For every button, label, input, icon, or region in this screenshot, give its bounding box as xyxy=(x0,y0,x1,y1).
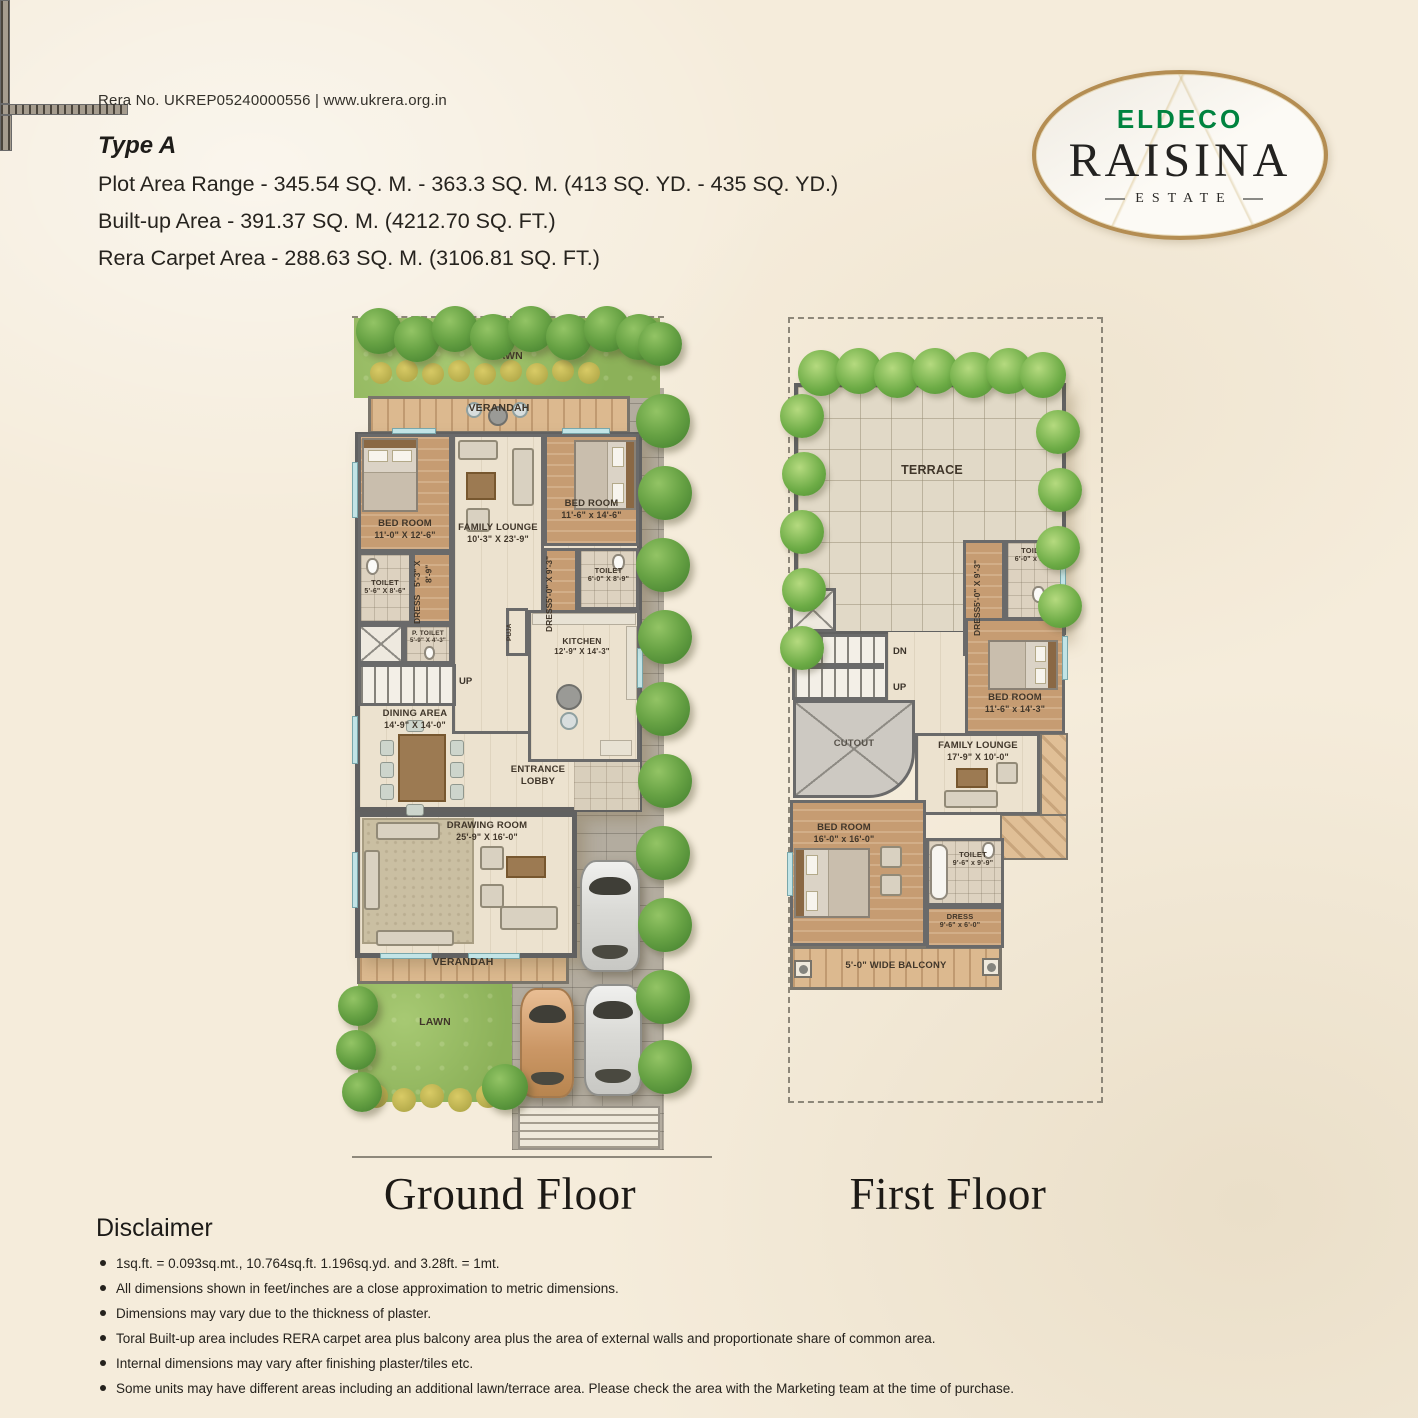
gf-armchair-icon xyxy=(480,884,504,908)
chair-icon xyxy=(380,762,394,778)
shrub-icon xyxy=(448,360,470,382)
gf-sofa-icon xyxy=(364,850,380,910)
gf-toilet-2-label: TOILET6'-0" X 8'-9" xyxy=(578,566,639,585)
disclaimer-item: 1sq.ft. = 0.093sq.mt., 10.764sq.ft. 1.19… xyxy=(116,1256,1386,1271)
tree-icon xyxy=(482,1064,528,1110)
tree-icon xyxy=(336,1030,376,1070)
ff-lounge-sofa-icon xyxy=(944,790,998,808)
tree-icon xyxy=(636,826,690,880)
bullet-icon xyxy=(100,1310,106,1316)
ff-terrace-label: TERRACE xyxy=(852,462,1012,478)
ff-side-balcony-corner xyxy=(1000,814,1068,860)
gf-dress-2-label: DRESS5'-0" X 9'-3" xyxy=(544,548,578,640)
ground-floor-title: Ground Floor xyxy=(352,1168,668,1220)
shrub-icon xyxy=(578,362,600,384)
plant-icon xyxy=(1038,468,1082,512)
ff-stairs-up-label: UP xyxy=(893,682,906,693)
window-icon xyxy=(1062,636,1068,680)
ff-dress-top-label: DRESS5'-0" X 9'-3" xyxy=(972,540,1005,656)
bullet-icon xyxy=(100,1260,106,1266)
gf-stairs xyxy=(358,664,456,706)
gf-toilet-1-wc-icon xyxy=(366,558,379,575)
shrub-icon xyxy=(422,363,444,385)
disclaimer-item: Dimensions may vary due to the thickness… xyxy=(116,1306,1386,1321)
gf-stove-icon xyxy=(600,740,632,756)
gf-lounge-table-icon xyxy=(466,472,496,500)
plant-icon xyxy=(782,568,826,612)
first-floor-title: First Floor xyxy=(790,1168,1106,1220)
tree-icon xyxy=(638,754,692,808)
plot-area-line: Plot Area Range - 345.54 SQ. M. - 363.3 … xyxy=(98,172,838,197)
ff-bedroom-2-label: BED ROOM16'-0" x 16'-0" xyxy=(794,822,894,845)
window-icon xyxy=(562,428,610,434)
ff-cutout-label: CUTOUT xyxy=(793,738,915,750)
gf-powder-toilet-wc-icon xyxy=(424,646,435,660)
type-label: Type A xyxy=(98,132,176,160)
ff-toilet-bottom-label: TOILET9'-6" x 9'-9" xyxy=(944,850,1002,869)
plant-icon xyxy=(780,510,824,554)
shrub-icon xyxy=(526,363,548,385)
ff-lounge-table-icon xyxy=(956,768,988,788)
brochure-page: Rera No. UKREP05240000556 | www.ukrera.o… xyxy=(0,0,1418,1418)
tree-icon xyxy=(638,322,682,366)
gf-dining-table-icon xyxy=(398,734,446,802)
chair-icon xyxy=(380,740,394,756)
plant-icon xyxy=(780,626,824,670)
chair-icon xyxy=(450,740,464,756)
plant-icon xyxy=(1036,410,1080,454)
logo-name-text: RAISINA xyxy=(1069,137,1292,185)
window-icon xyxy=(352,852,358,908)
ff-bedroom-chair-icon xyxy=(880,874,902,896)
plant-icon xyxy=(780,394,824,438)
shrub-icon xyxy=(552,360,574,382)
ff-stairs-dn-label: DN xyxy=(893,646,907,657)
tree-icon xyxy=(338,986,378,1026)
plant-icon xyxy=(1038,584,1082,628)
logo-subtitle-text: ESTATE xyxy=(1135,191,1232,207)
ff-balcony-label: 5'-0" WIDE BALCONY xyxy=(792,960,1000,972)
logo-brand-text: ELDECO xyxy=(1117,104,1243,135)
tree-icon xyxy=(636,538,690,592)
shrub-icon xyxy=(474,363,496,385)
gf-lawn-bottom-label: LAWN xyxy=(358,1016,512,1029)
car-icon xyxy=(520,988,574,1098)
round-chair-icon xyxy=(560,712,578,730)
window-icon xyxy=(392,428,436,434)
ff-family-lounge-label: FAMILY LOUNGE17'-9" X 10'-0" xyxy=(918,740,1038,763)
gf-sofa-icon xyxy=(500,906,558,930)
shrub-icon xyxy=(448,1088,472,1112)
shrub-icon xyxy=(396,360,418,382)
chair-icon xyxy=(450,762,464,778)
shrub-icon xyxy=(370,362,392,384)
logo-dash-left-icon xyxy=(1105,198,1125,200)
gf-stairs-up-label: UP xyxy=(459,676,472,687)
logo-dash-right-icon xyxy=(1243,198,1263,200)
ff-bedroom-1-label: BED ROOM11'-6" x 14'-3" xyxy=(965,692,1065,715)
car-icon xyxy=(580,860,640,972)
plant-icon xyxy=(1036,526,1080,570)
disclaimer-item: Toral Built-up area includes RERA carpet… xyxy=(116,1331,1386,1346)
gf-verandah-bottom-label: VERANDAH xyxy=(357,956,569,969)
ff-lounge-chair-icon xyxy=(996,762,1018,784)
rera-carpet-area-line: Rera Carpet Area - 288.63 SQ. M. (3106.8… xyxy=(98,246,600,271)
window-icon xyxy=(787,852,793,896)
gf-shaft xyxy=(358,624,404,664)
built-up-area-line: Built-up Area - 391.37 SQ. M. (4212.70 S… xyxy=(98,209,556,234)
logo-subtitle: ESTATE xyxy=(1097,191,1262,207)
plant-icon xyxy=(1020,352,1066,398)
tree-icon xyxy=(636,682,690,736)
shrub-icon xyxy=(500,360,522,382)
gf-lounge-sofa-icon xyxy=(458,440,498,460)
window-icon xyxy=(352,716,358,764)
window-icon xyxy=(352,462,358,518)
gf-entrance-lobby-label: ENTRANCE LOBBY xyxy=(508,764,568,788)
gf-dining-label: DINING AREA14'-9" X 14'-0" xyxy=(360,708,470,731)
rera-number-line: Rera No. UKREP05240000556 | www.ukrera.o… xyxy=(98,92,447,109)
ff-wardrobe-icon xyxy=(0,115,12,151)
tree-icon xyxy=(342,1072,382,1112)
disclaimer-title: Disclaimer xyxy=(96,1214,213,1243)
gf-drawing-room-label: DRAWING ROOM25'-9" X 16'-0" xyxy=(402,820,572,843)
gf-bedroom-1-label: BED ROOM11'-0" X 12'-6" xyxy=(358,518,452,541)
bullet-icon xyxy=(100,1360,106,1366)
shrub-icon xyxy=(392,1088,416,1112)
tree-icon xyxy=(638,466,692,520)
car-icon xyxy=(584,984,642,1096)
chair-icon xyxy=(450,784,464,800)
disclaimer-list: 1sq.ft. = 0.093sq.mt., 10.764sq.ft. 1.19… xyxy=(116,1256,1386,1406)
tree-icon xyxy=(638,610,692,664)
bullet-icon xyxy=(100,1285,106,1291)
ff-bedroom-chair-icon xyxy=(880,846,902,868)
gf-puja-label: PUJA xyxy=(506,608,528,656)
gf-armchair-icon xyxy=(480,846,504,870)
disclaimer-item: Some units may have different areas incl… xyxy=(116,1381,1386,1396)
tree-icon xyxy=(638,1040,692,1094)
gf-dress-1-label: DRESS5'-3" X 8'-9" xyxy=(412,552,452,624)
gf-sofa-icon xyxy=(376,930,454,946)
gf-bed-icon xyxy=(362,438,418,512)
gf-bedroom-2-label: BED ROOM11'-6" x 14'-6" xyxy=(544,498,639,521)
disclaimer-item: All dimensions shown in feet/inches are … xyxy=(116,1281,1386,1296)
tree-icon xyxy=(636,394,690,448)
gf-lounge-sofa-icon xyxy=(512,448,534,506)
gf-toilet-1-label: TOILET5'-6" X 8'-6" xyxy=(358,578,412,597)
tree-icon xyxy=(638,898,692,952)
bullet-icon xyxy=(100,1385,106,1391)
gf-verandah-top-label: VERANDAH xyxy=(368,402,630,415)
chair-icon xyxy=(406,804,424,816)
tree-icon xyxy=(636,970,690,1024)
gf-entry-steps xyxy=(518,1106,660,1150)
bullet-icon xyxy=(100,1335,106,1341)
gf-powder-toilet-label: P. TOILET5'-9" X 4'-3" xyxy=(404,630,452,646)
eldeco-raisina-logo: ELDECO RAISINA ESTATE xyxy=(1032,70,1328,240)
ff-bed-icon xyxy=(794,848,870,918)
gf-kitchen-label: KITCHEN12'-9" X 14'-3" xyxy=(528,636,636,657)
gf-plot-bottom-line xyxy=(352,1156,712,1158)
ff-wardrobe-icon xyxy=(0,0,10,104)
shrub-icon xyxy=(420,1084,444,1108)
chair-icon xyxy=(380,784,394,800)
round-table-icon xyxy=(556,684,582,710)
window-icon xyxy=(637,648,643,688)
disclaimer-item: Internal dimensions may vary after finis… xyxy=(116,1356,1386,1371)
plant-icon xyxy=(782,452,826,496)
gf-family-lounge-label: FAMILY LOUNGE10'-3" X 23'-9" xyxy=(448,522,548,545)
gf-coffee-table-icon xyxy=(506,856,546,878)
ff-dress-bottom-label: DRESS9'-6" x 6'-0" xyxy=(930,912,990,931)
